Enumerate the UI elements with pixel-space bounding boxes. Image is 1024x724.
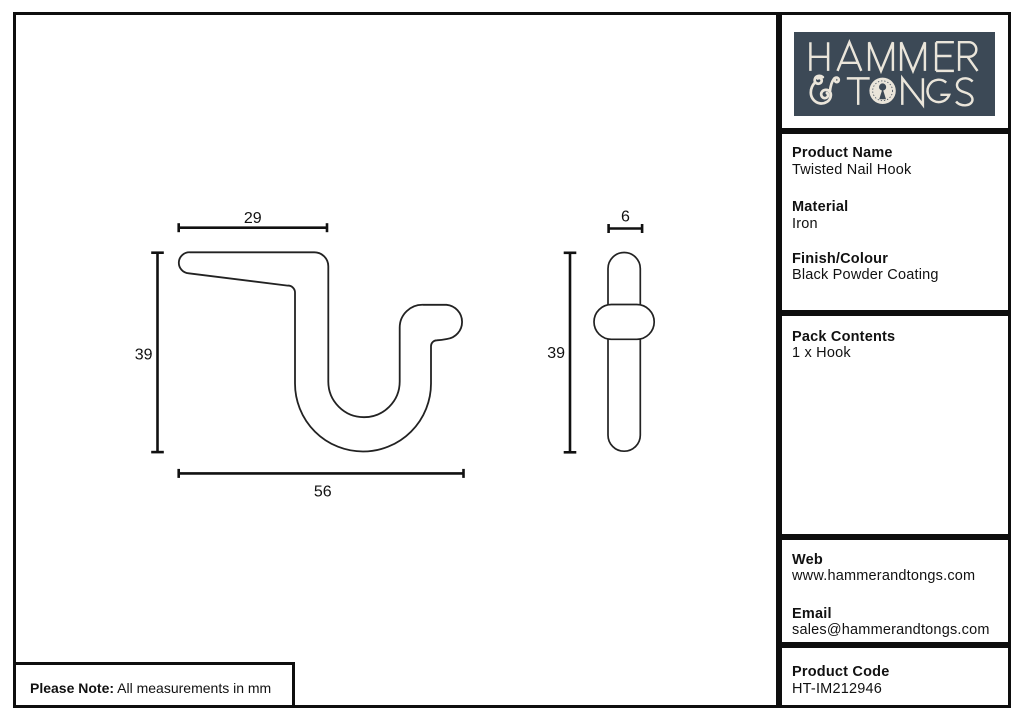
svg-text:29: 29 [244,210,262,227]
svg-text:6: 6 [621,209,630,226]
svg-text:39: 39 [547,345,565,362]
svg-text:39: 39 [135,347,153,364]
svg-text:56: 56 [314,484,332,501]
